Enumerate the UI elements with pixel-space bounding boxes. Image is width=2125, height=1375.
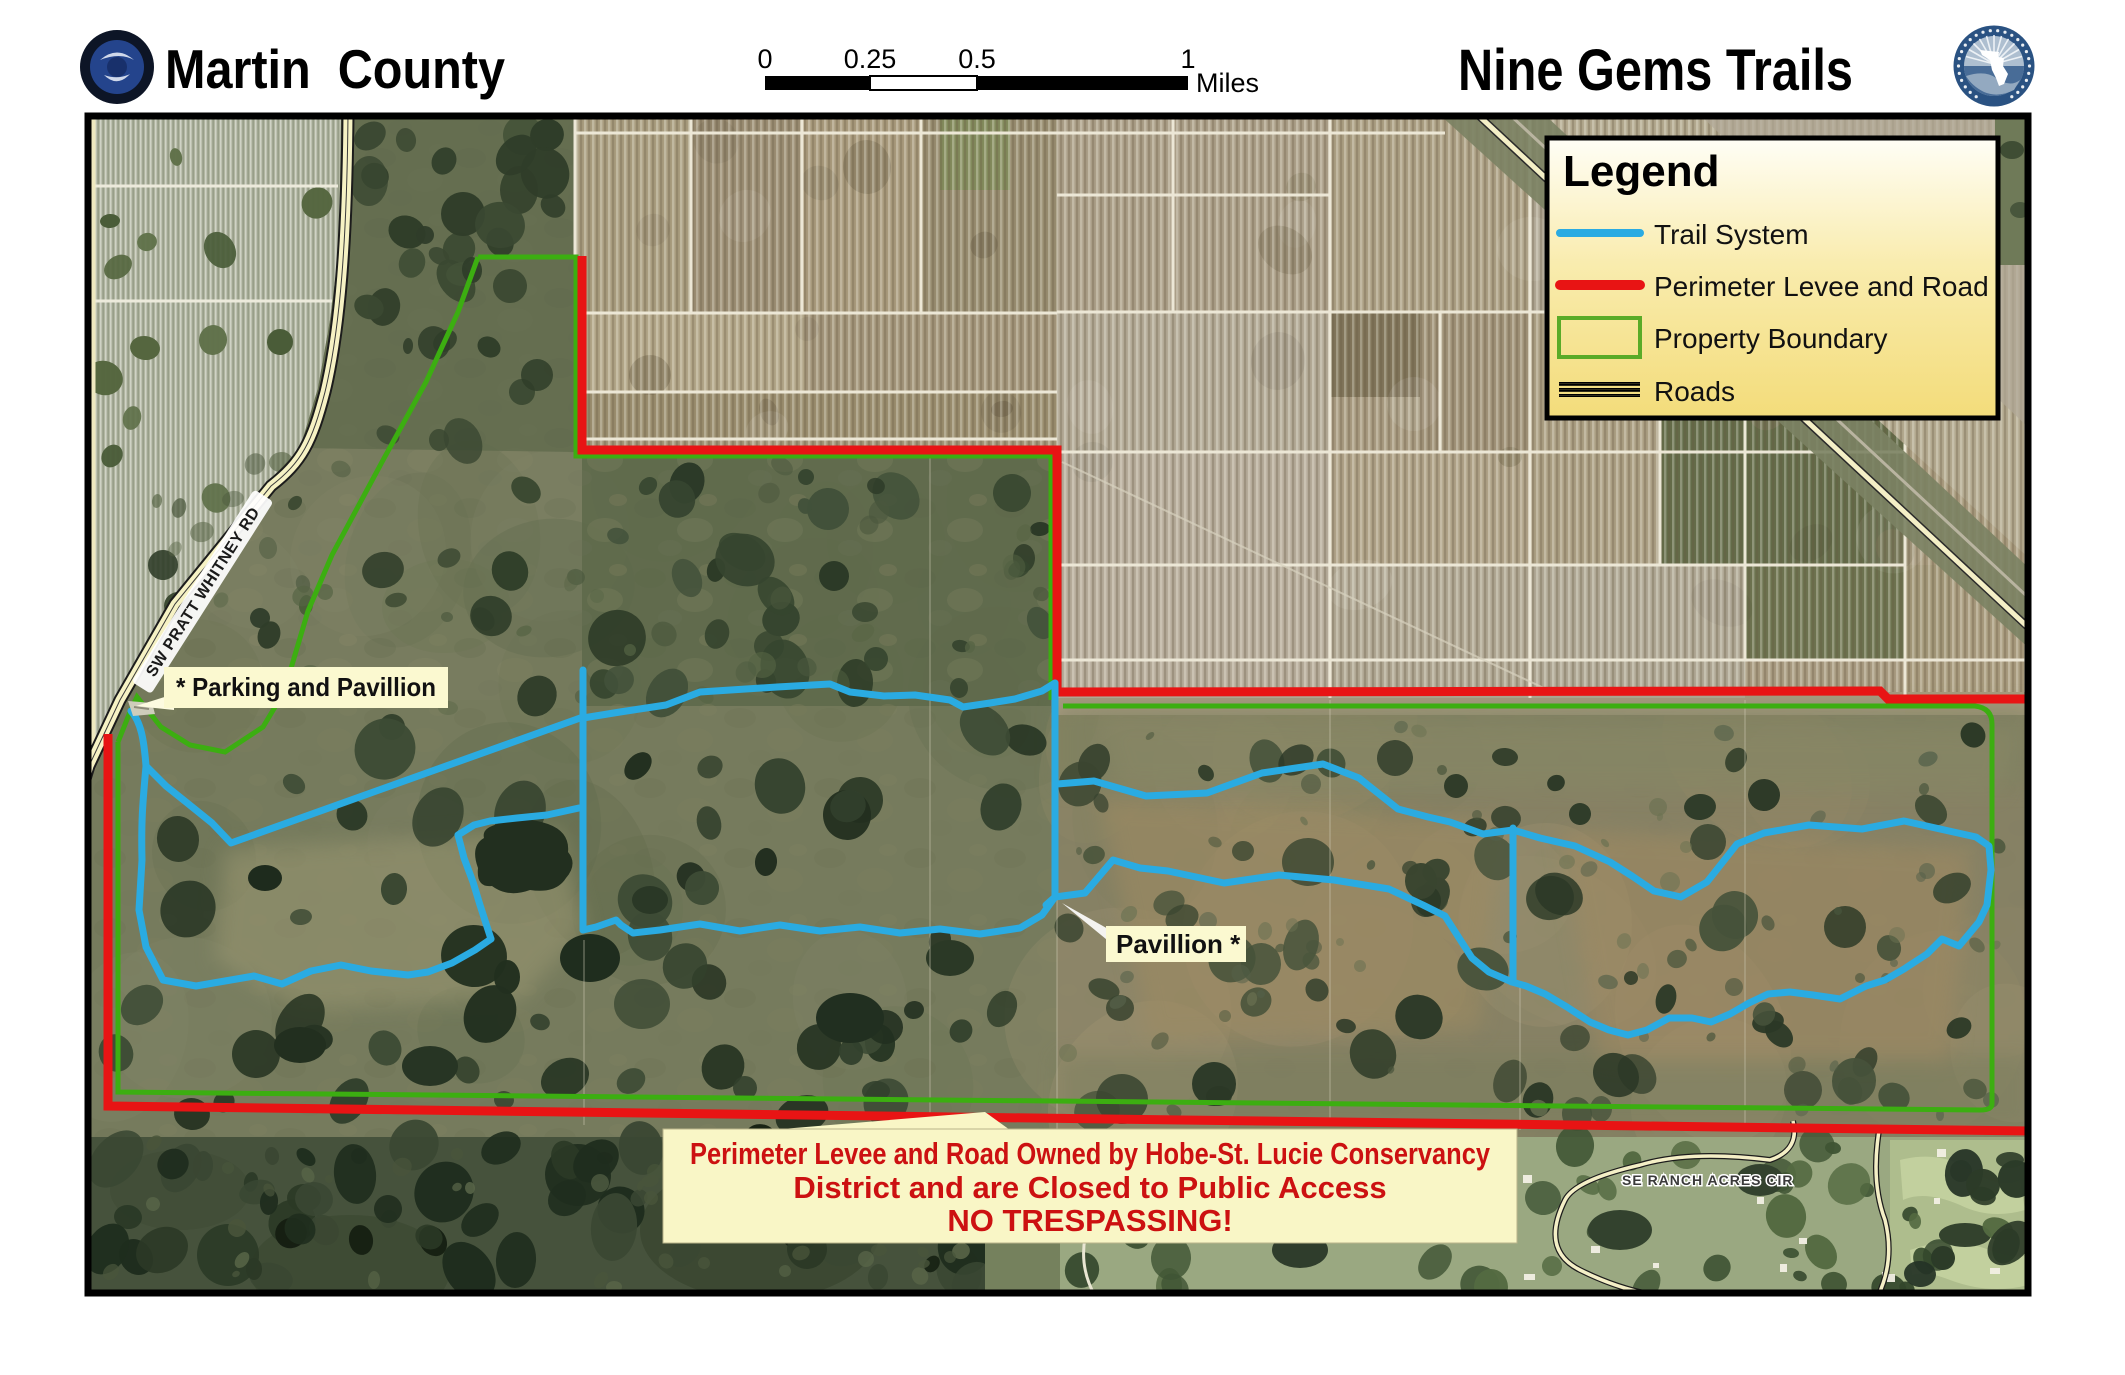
svg-text:Property Boundary: Property Boundary (1654, 323, 1887, 354)
svg-text:Roads: Roads (1654, 376, 1735, 407)
svg-text:0: 0 (757, 44, 772, 74)
svg-text:Pavillion *: Pavillion * (1116, 929, 1241, 959)
svg-text:Perimeter Levee and Road: Perimeter Levee and Road (1654, 271, 1989, 302)
svg-text:Trail System: Trail System (1654, 219, 1809, 250)
svg-text:Legend: Legend (1563, 147, 1719, 196)
svg-text:* Parking and Pavillion: * Parking and Pavillion (176, 672, 436, 702)
svg-text:Martin County: Martin County (165, 38, 505, 100)
svg-text:SE RANCH ACRES CIR: SE RANCH ACRES CIR (1622, 1172, 1794, 1188)
svg-text:NO TRESPASSING!: NO TRESPASSING! (947, 1203, 1232, 1238)
svg-text:Perimeter Levee and Road Owned: Perimeter Levee and Road Owned by Hobe-S… (690, 1136, 1491, 1171)
svg-text:District and are Closed to Pub: District and are Closed to Public Access (793, 1170, 1386, 1205)
svg-text:1: 1 (1180, 44, 1195, 74)
svg-text:Nine Gems Trails: Nine Gems Trails (1458, 38, 1853, 103)
svg-text:0.5: 0.5 (958, 44, 996, 74)
svg-text:Miles: Miles (1196, 68, 1259, 98)
svg-text:0.25: 0.25 (844, 44, 897, 74)
